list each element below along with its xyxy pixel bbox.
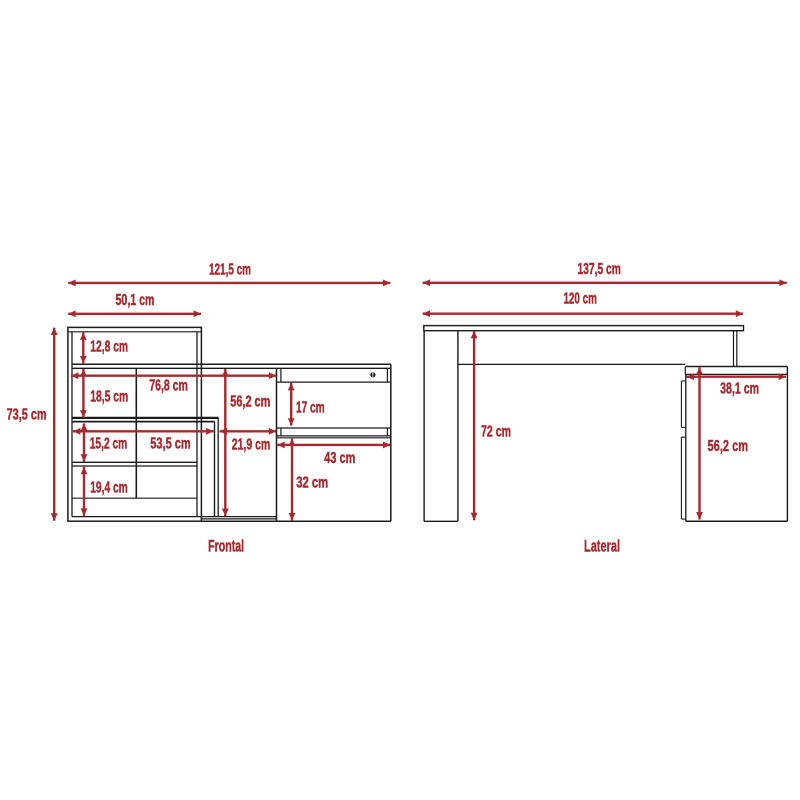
svg-text:53,5 cm: 53,5 cm xyxy=(150,435,191,452)
svg-text:43 cm: 43 cm xyxy=(324,450,355,467)
svg-text:12,8 cm: 12,8 cm xyxy=(90,338,128,355)
svg-text:50,1 cm: 50,1 cm xyxy=(116,292,155,309)
svg-text:Frontal: Frontal xyxy=(208,537,244,555)
svg-text:38,1 cm: 38,1 cm xyxy=(720,380,759,397)
svg-text:21,9 cm: 21,9 cm xyxy=(232,437,271,454)
svg-text:120 cm: 120 cm xyxy=(563,291,597,308)
svg-text:18,5 cm: 18,5 cm xyxy=(90,389,128,406)
svg-text:17 cm: 17 cm xyxy=(296,399,325,416)
svg-text:72 cm: 72 cm xyxy=(481,423,511,440)
svg-text:32 cm: 32 cm xyxy=(296,474,328,491)
svg-text:15,2 cm: 15,2 cm xyxy=(90,435,128,452)
svg-text:137,5 cm: 137,5 cm xyxy=(577,261,621,278)
svg-text:73,5 cm: 73,5 cm xyxy=(7,406,47,423)
svg-text:19,4 cm: 19,4 cm xyxy=(90,479,128,496)
svg-text:76,8 cm: 76,8 cm xyxy=(149,378,188,395)
svg-text:Lateral: Lateral xyxy=(584,537,620,555)
svg-text:56,2 cm: 56,2 cm xyxy=(230,394,270,411)
svg-text:121,5 cm: 121,5 cm xyxy=(209,261,251,278)
svg-text:56,2 cm: 56,2 cm xyxy=(708,438,749,455)
